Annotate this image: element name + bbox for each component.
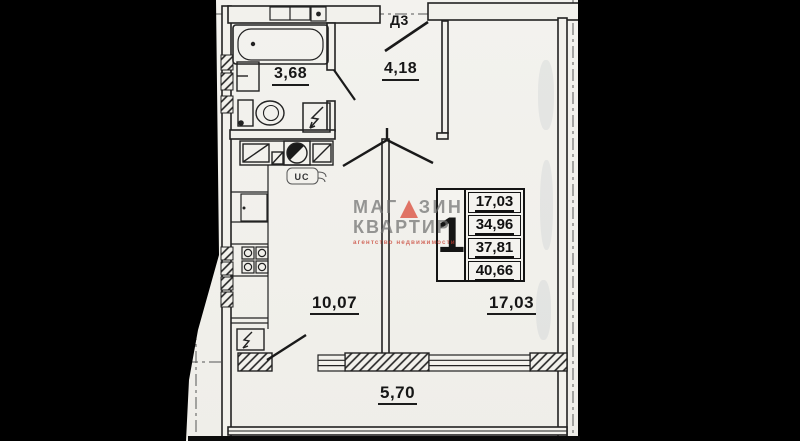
area-table-row: 40,66 xyxy=(468,261,521,282)
toilet xyxy=(238,100,284,126)
wall-left xyxy=(222,6,231,437)
watermark: МАГЗИН КВАРТИР агентство недвижимости xyxy=(353,197,463,246)
area-table-row: 37,81 xyxy=(468,238,521,259)
watermark-line1-left: МАГ xyxy=(353,197,399,217)
washbasin xyxy=(237,62,259,91)
area-table-row: 17,03 xyxy=(468,192,521,213)
wall-right xyxy=(558,18,567,437)
room-area-balcony: 5,70 xyxy=(378,384,417,405)
boiler-lightning-icon xyxy=(303,103,330,132)
wall-bathroom-right-lower xyxy=(327,101,335,131)
room-area-bathroom: 3,68 xyxy=(272,66,309,86)
scan-ghost-mark xyxy=(536,280,551,340)
stove xyxy=(242,247,268,273)
scan-ghost-mark xyxy=(540,160,553,250)
wall-hall-living xyxy=(442,21,448,133)
watermark-line-2: КВАРТИР xyxy=(353,217,463,238)
scan-edge-right xyxy=(578,0,580,441)
uc-label: UC xyxy=(295,172,310,182)
bathroom-door-swing xyxy=(334,70,355,100)
room-area-hallway: 4,18 xyxy=(382,61,419,81)
uc-box: UC xyxy=(287,168,326,184)
entry-door-label: Д3 xyxy=(390,13,409,27)
window-left xyxy=(318,355,345,371)
watermark-line1-right: ЗИН xyxy=(419,197,464,217)
area-value: 17,03 xyxy=(475,193,515,212)
area-value: 37,81 xyxy=(475,239,515,258)
window-right xyxy=(429,355,530,371)
room-area-kitchen: 10,07 xyxy=(310,294,359,315)
floor-plan-scan: { "plan": { "entry_door_label": "Д3", "u… xyxy=(0,0,800,441)
watermark-triangle-icon xyxy=(400,200,418,218)
area-table-row: 34,96 xyxy=(468,215,521,236)
watermark-line-1: МАГЗИН xyxy=(353,197,463,217)
kitchen-counter xyxy=(240,141,333,165)
room-area-living-room: 17,03 xyxy=(487,294,536,315)
kitchen-column xyxy=(231,165,268,329)
area-value: 40,66 xyxy=(475,262,515,281)
balcony-lightning-icon xyxy=(237,329,264,350)
area-table-values: 17,03 34,96 37,81 40,66 xyxy=(466,190,523,280)
wall-kitchen-living xyxy=(382,139,389,354)
paper: UC xyxy=(186,0,580,441)
scan-ghost-mark xyxy=(538,60,554,130)
scan-edge-bottom xyxy=(188,436,580,441)
scan-edge-left xyxy=(186,0,219,441)
watermark-line-3: агентство недвижимости xyxy=(353,239,463,246)
bathtub xyxy=(233,25,328,64)
wall-hall-living-foot xyxy=(437,133,448,139)
area-value: 34,96 xyxy=(475,216,515,235)
balcony-door-swing xyxy=(267,335,306,360)
